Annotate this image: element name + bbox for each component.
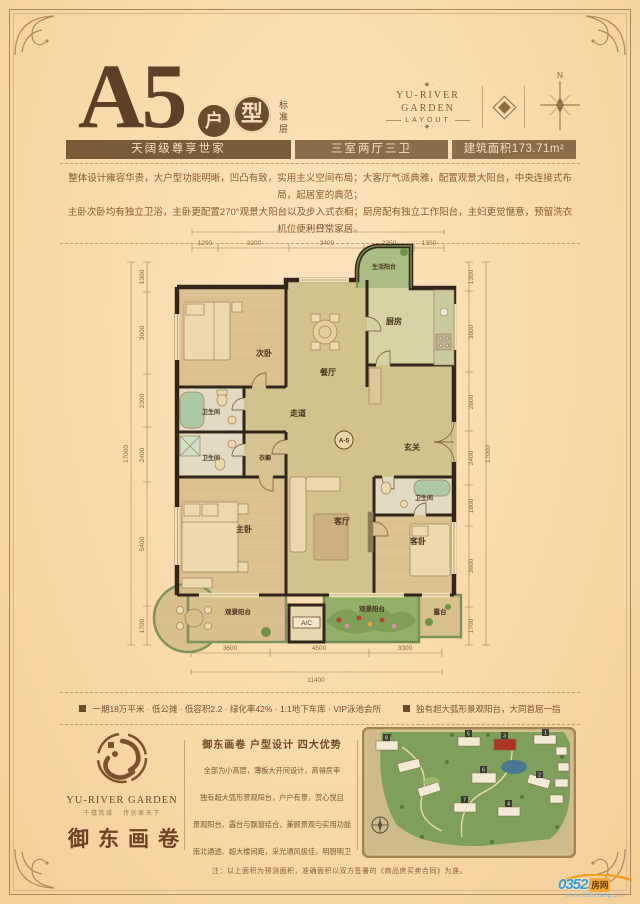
room-label-service-balcony: 生活阳台 xyxy=(372,263,396,271)
dim-right-seg: 1300 xyxy=(468,269,475,284)
room-label-entry: 玄关 xyxy=(404,442,420,452)
feature-text-1: 一期18万平米 · 低公摊 · 低容积2.2 · 绿化率42% · 1:1地下车… xyxy=(92,703,381,715)
room-label-wardrobe: 衣橱 xyxy=(259,454,271,462)
unit-badge-label: A-5 xyxy=(339,438,350,445)
footnote: 注：以上面积为预测面积，准确面积以双方签署的《商品房买卖合同》为准。 xyxy=(212,866,467,876)
corner-ornament-tl xyxy=(12,12,58,58)
dim-left-seg: 3600 xyxy=(139,325,146,340)
dim-left-seg: 1300 xyxy=(139,269,146,284)
advantage-line: 全部为小高层，薄板大开间设计，高得房率 xyxy=(188,757,356,784)
room-label-ac: A/C xyxy=(301,620,312,627)
room-label-bedroom2: 次卧 xyxy=(256,348,272,358)
feature-item-2: 独有超大弧形景观阳台，大同首屈一指 xyxy=(403,703,561,715)
advantage-line: 独有超大弧形景观阳台，户户有景，赏心悦目 xyxy=(188,784,356,811)
feature-text-2: 独有超大弧形景观阳台，大同首屈一指 xyxy=(416,703,561,715)
dim-left-seg: 2300 xyxy=(139,393,146,408)
footer-logo-block: YU-RIVER GARDEN 千禧筑城 · 传创家天下 御东画卷 xyxy=(62,730,182,853)
room-label-view-balcony-center: 观景阳台 xyxy=(359,604,386,613)
info-bar-area: 建筑面积173.71m² xyxy=(452,140,576,159)
siteplan-greenery xyxy=(380,732,570,846)
footer-logo-tagline: 千禧筑城 · 传创家天下 xyxy=(62,808,182,817)
badge-xing: 型 xyxy=(233,95,271,133)
room-label-bath3: 卫生间 xyxy=(415,494,433,502)
description-line-1: 整体设计雍容华贵，大户型功能明晰，凹凸有致，实用主义空间布局；大客厅气派典雅，配… xyxy=(66,170,574,204)
building-number: 2 xyxy=(538,773,541,779)
watermark-fang-chip: 房网 xyxy=(589,878,610,892)
advantages-title: 御东画卷 户型设计 四大优势 xyxy=(188,736,356,751)
building-number: 6 xyxy=(482,768,485,774)
corner-ornament-tr xyxy=(582,12,628,58)
dim-top-seg: 1350 xyxy=(422,240,437,247)
room-label-guest: 客卧 xyxy=(409,536,426,546)
dim-bottom-seg: 4500 xyxy=(312,645,327,652)
dim-bottom-seg: 3300 xyxy=(398,645,413,652)
floorplan: 11400 1200 3200 3400 2250 1350 1300 3600… xyxy=(114,222,526,690)
brand-name-line1: YU-RIVER xyxy=(386,89,470,102)
watermark-number: 0352 xyxy=(558,876,587,893)
building-number: 1 xyxy=(544,731,547,737)
room-label-corridor: 走道 xyxy=(289,408,306,418)
info-bar-1: 天阔级尊享世家 xyxy=(66,140,291,159)
dim-right-seg: 2600 xyxy=(468,394,475,409)
dim-left-total: 17000 xyxy=(123,445,130,463)
header-divider-1 xyxy=(482,86,483,128)
dim-top-seg: 1200 xyxy=(198,240,213,247)
header-divider-2 xyxy=(524,86,525,128)
compass-n-label: N xyxy=(557,71,563,80)
dim-bottom-seg: 3600 xyxy=(223,645,238,652)
footer-divider-1 xyxy=(184,740,185,850)
building-number: 3 xyxy=(503,734,506,740)
room-label-living: 客厅 xyxy=(333,516,350,526)
footer-logo-en: YU-RIVER GARDEN xyxy=(62,795,182,806)
page-title: A5 xyxy=(78,50,184,142)
brand-layout-label: LAYOUT xyxy=(386,117,470,124)
diamond-ornament xyxy=(492,95,516,119)
dim-right-total: 17000 xyxy=(485,445,492,463)
advantage-line: 景观阳台、露台与飘窗结合，兼顾景观与实用功能 xyxy=(188,811,356,838)
footer-logo-cn: 御东画卷 xyxy=(68,823,182,853)
advantage-line: 南北通透、超大楼间距，采光通风极佳，明厨明卫 xyxy=(188,838,356,865)
siteplan-compass-icon xyxy=(372,817,388,833)
info-bar-2: 三室两厅三卫 xyxy=(295,140,448,159)
dim-right-seg: 1800 xyxy=(468,498,475,513)
watermark-logo: 0352 房网 xyxy=(558,876,610,893)
feature-item-1: 一期18万平米 · 低公摊 · 低容积2.2 · 绿化率42% · 1:1地下车… xyxy=(79,703,381,715)
building-number: 4 xyxy=(507,802,510,808)
room-label-bath2: 卫生间 xyxy=(202,454,220,462)
room-label-kitchen: 厨房 xyxy=(386,316,402,326)
dim-left-seg: 1700 xyxy=(139,618,146,633)
dim-right-seg: 3600 xyxy=(468,558,475,573)
dim-right-seg: 2400 xyxy=(468,450,475,465)
dim-top-seg: 3400 xyxy=(320,240,335,247)
footer-divider-2 xyxy=(357,740,358,850)
brand-ornament-top: ·◆· xyxy=(386,82,470,89)
room-label-master: 主卧 xyxy=(236,524,252,534)
corner-ornament-bl xyxy=(12,846,58,892)
building-number: 7 xyxy=(463,798,466,804)
brochure-page: A5 户 型 标准层 ·◆· YU-RIVER GARDEN LAYOUT ·◆… xyxy=(0,0,640,904)
bullet-square-icon xyxy=(403,705,410,712)
badge-hu: 户 xyxy=(198,105,230,137)
room-label-dining: 餐厅 xyxy=(319,367,336,377)
room-label-terrace: 露台 xyxy=(434,607,448,616)
brand-emblem-icon xyxy=(93,730,151,788)
advantages-block: 御东画卷 户型设计 四大优势 全部为小高层，薄板大开间设计，高得房率 独有超大弧… xyxy=(188,736,356,865)
dim-left-seg: 5400 xyxy=(139,536,146,551)
siteplan-panel: 1 2 3 4 5 6 7 8 xyxy=(362,727,576,858)
building-number: 8 xyxy=(385,736,388,742)
dim-bottom-total: 11400 xyxy=(307,677,325,684)
brand-block: ·◆· YU-RIVER GARDEN LAYOUT ·◆· xyxy=(386,82,470,131)
brand-name-line2: GARDEN xyxy=(386,102,470,115)
dim-top-seg: 3200 xyxy=(247,240,262,247)
features-bar: 一期18万平米 · 低公摊 · 低容积2.2 · 绿化率42% · 1:1地下车… xyxy=(60,692,580,725)
compass: N xyxy=(534,68,586,134)
watermark: 0352 房网 www.0352fang.com xyxy=(552,874,638,902)
dim-right-seg: 1700 xyxy=(468,618,475,633)
subtitle-standard-floor: 标准层 xyxy=(277,100,290,136)
dim-right-seg: 3600 xyxy=(468,324,475,339)
room-label-view-balcony-left: 观景阳台 xyxy=(225,607,252,616)
brand-ornament-bottom: ·◆· xyxy=(386,124,470,131)
bullet-square-icon xyxy=(79,705,86,712)
brand-layout-text: LAYOUT xyxy=(405,117,451,124)
dim-left-seg: 2400 xyxy=(139,447,146,462)
watermark-url: www.0352fang.com xyxy=(566,893,626,899)
building-number: 5 xyxy=(467,732,470,738)
dim-top-total: 11400 xyxy=(309,224,327,231)
room-label-bath1: 卫生间 xyxy=(202,408,220,416)
